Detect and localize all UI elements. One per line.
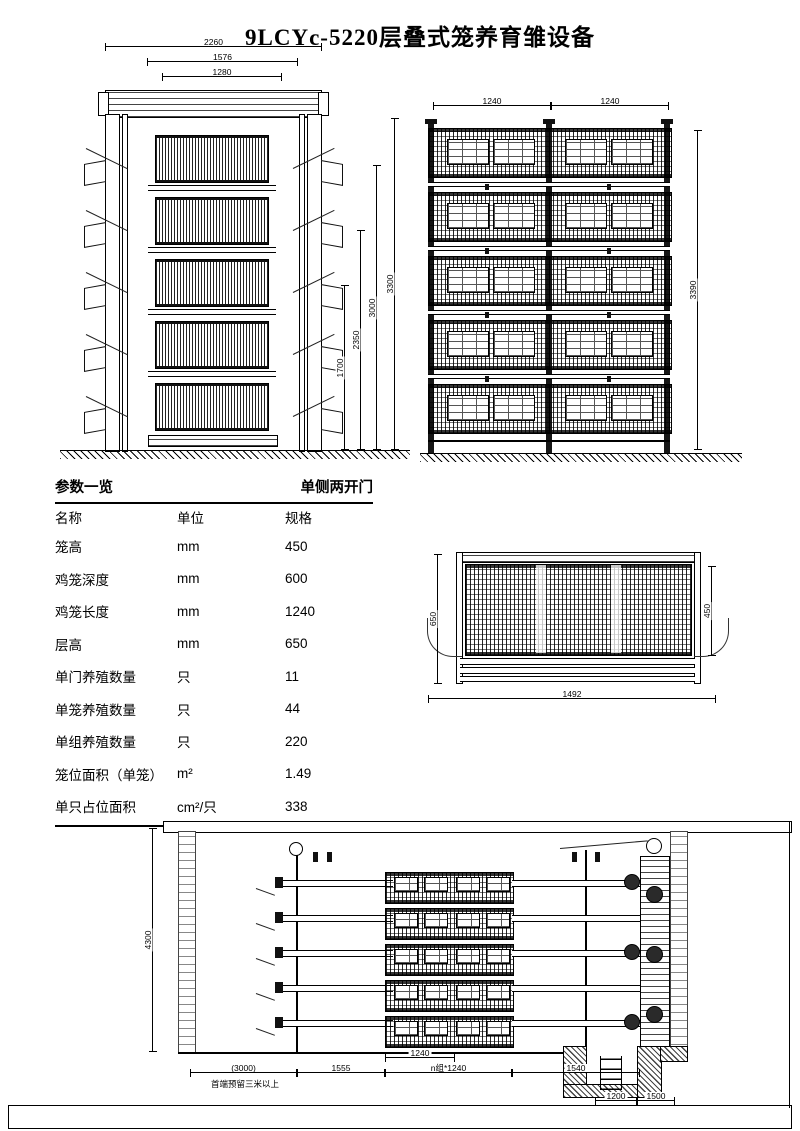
ground-hatch [60, 450, 410, 459]
frame-right-line [789, 821, 790, 1108]
table-variant: 单侧两开门 [301, 476, 374, 497]
front-tier-1 [428, 128, 672, 178]
pit-ladder [600, 1056, 622, 1090]
feeder-mark [485, 376, 489, 382]
elev-tier-2 [385, 908, 514, 940]
dim-elev-1240: 1240 [385, 1057, 455, 1058]
feed-trough-right [321, 222, 343, 248]
pit-ledge [660, 1046, 688, 1062]
section-mesh [465, 564, 692, 656]
hopper-mark [595, 852, 600, 862]
manure-belt [148, 371, 276, 377]
cage-door [565, 331, 607, 357]
mesh-divider [611, 565, 621, 653]
tier-rail-right [512, 880, 640, 887]
front-tier-5 [428, 384, 672, 434]
tier-rail-right [512, 950, 640, 957]
cage-door [611, 267, 653, 293]
dim-side-frame-width: 1576 [147, 61, 298, 62]
cage-door [486, 985, 510, 1000]
section-rail [460, 667, 695, 674]
cage-tier-1 [155, 135, 269, 183]
dim-elev-ncage: n组*1240 [385, 1072, 512, 1073]
cage-door [424, 1021, 448, 1036]
tier-rail-left [283, 1020, 393, 1027]
feed-trough-left [84, 284, 106, 310]
elev-tier-5 [385, 1016, 514, 1048]
motor-icon [624, 944, 640, 960]
cage-door [447, 203, 489, 229]
sprocket-icon [646, 946, 663, 963]
post-cap [661, 119, 673, 124]
tier-rail-right [512, 915, 640, 922]
dim-side-2350: 2350 [360, 230, 361, 450]
feed-trough-right [321, 160, 343, 186]
table-column-headers: 名称 单位 规格 [55, 504, 373, 530]
table-header: 参数一览 单侧两开门 [55, 476, 373, 504]
cage-door [493, 203, 535, 229]
top-beam [105, 90, 322, 118]
cage-door [565, 203, 607, 229]
cage-door [456, 877, 480, 892]
rail-knob [275, 947, 283, 958]
table-row: 鸡笼长度mm1240 [55, 595, 373, 628]
cage-door [611, 395, 653, 421]
motor-icon [624, 874, 640, 890]
step-bracket [256, 993, 275, 1001]
cage-door [456, 913, 480, 928]
cage-door [611, 331, 653, 357]
dim-front-bay-left: 1240 [433, 105, 551, 106]
sprocket-icon [646, 886, 663, 903]
section-top-rail [460, 552, 697, 563]
cage-door [447, 395, 489, 421]
dim-elev-4300: 4300 [152, 828, 153, 1052]
dim-front-height: 3390 [697, 130, 698, 450]
feeder-mark [607, 248, 611, 254]
bottom-trough [148, 435, 278, 447]
cage-door [493, 331, 535, 357]
side-post-left-inner [122, 114, 128, 452]
dim-elev-1540: 1540 [512, 1072, 640, 1073]
front-view-drawing: 1240 1240 [425, 95, 735, 465]
feed-trough-left [84, 408, 106, 434]
cage-door [456, 949, 480, 964]
cage-door [611, 139, 653, 165]
dim-side-1700: 1700 [344, 285, 345, 450]
dim-side-overall-width: 2260 [105, 46, 322, 47]
hopper-mark [572, 852, 577, 862]
table-row: 鸡笼深度mm600 [55, 563, 373, 596]
front-tier-3 [428, 256, 672, 306]
tier-rail [428, 310, 670, 315]
dim-front-bay-right: 1240 [551, 105, 669, 106]
dim-elev-reserve: (3000) [190, 1072, 297, 1073]
cable-line [560, 840, 648, 849]
feeder-mark [607, 376, 611, 382]
table-row: 单笼养殖数量只44 [55, 693, 373, 726]
cage-tier-4 [155, 321, 269, 369]
hopper-mark [327, 852, 332, 862]
side-view-drawing: 2260 1576 1280 [60, 42, 415, 467]
feed-trough-right [321, 408, 343, 434]
floor-line [178, 1052, 563, 1054]
base-rail [428, 440, 670, 442]
cage-door [565, 139, 607, 165]
tier-rail [428, 374, 670, 379]
cage-door [493, 267, 535, 293]
dim-section-450: 450 [711, 566, 712, 656]
cage-door [394, 1021, 418, 1036]
front-tier-4 [428, 320, 672, 370]
dim-pit-1500: 1500 [637, 1100, 675, 1101]
motor-icon [624, 1014, 640, 1030]
section-rail [460, 658, 695, 665]
parameter-table: 参数一览 单侧两开门 名称 单位 规格 笼高mm450 鸡笼深度mm600 鸡笼… [55, 476, 373, 827]
tier-rail-right [512, 1020, 640, 1027]
elev-tier-3 [385, 944, 514, 976]
table-row: 笼高mm450 [55, 530, 373, 563]
mesh-divider [536, 565, 546, 653]
reserve-note: 首端预留三米以上 [190, 1078, 300, 1090]
cage-door [493, 395, 535, 421]
step-bracket [256, 958, 275, 966]
section-rail [460, 676, 695, 682]
cage-door [611, 203, 653, 229]
cage-door [486, 1021, 510, 1036]
feeder-mark [485, 248, 489, 254]
dim-section-1492: 1492 [428, 698, 716, 699]
table-body: 名称 单位 规格 笼高mm450 鸡笼深度mm600 鸡笼长度mm1240 层高… [55, 504, 373, 827]
cage-door [424, 913, 448, 928]
feeder-mark [607, 184, 611, 190]
feeder-mark [485, 184, 489, 190]
manure-belt [148, 309, 276, 315]
dim-section-650: 650 [437, 554, 438, 684]
step-bracket [256, 1028, 275, 1036]
pulley-icon [289, 842, 303, 856]
elevation-drawing: 4300 1240 (3000) 1555 n组*1240 1540 首端预留三… [108, 816, 792, 1108]
post-cap [425, 119, 437, 124]
feeder-mark [485, 312, 489, 318]
cage-door [456, 985, 480, 1000]
feed-trough-left [84, 222, 106, 248]
step-bracket [256, 923, 275, 931]
cage-tier-2 [155, 197, 269, 245]
cage-door [565, 395, 607, 421]
post-cap [543, 119, 555, 124]
cage-door [447, 331, 489, 357]
wall-column-right [670, 831, 688, 1054]
dim-side-inner-width: 1280 [162, 76, 282, 77]
cage-door [486, 949, 510, 964]
tier-rail-left [283, 915, 393, 922]
tier-rail-left [283, 950, 393, 957]
ground-hatch [420, 453, 742, 462]
cage-door [424, 877, 448, 892]
drive-pulley-icon [646, 838, 662, 854]
tier-rail [428, 182, 670, 187]
cage-door [486, 913, 510, 928]
cage-door [493, 139, 535, 165]
cage-door [447, 139, 489, 165]
table-row: 单门养殖数量只11 [55, 660, 373, 693]
section-view-drawing: 650 450 1492 [415, 540, 745, 712]
rail-knob [275, 877, 283, 888]
cage-door [394, 985, 418, 1000]
beam-end-left [98, 92, 109, 116]
cage-door [565, 267, 607, 293]
table-row: 层高mm650 [55, 628, 373, 661]
feeder-mark [607, 312, 611, 318]
beam-end-right [318, 92, 329, 116]
dim-side-3300: 3300 [394, 118, 395, 450]
table-row: 笼位面积（单笼）m²1.49 [55, 758, 373, 791]
step-bracket [256, 888, 275, 896]
dim-pit-1200: 1200 [595, 1100, 637, 1101]
drawing-sheet: 9LCYc-5220层叠式笼养育雏设备 2260 1576 1280 [0, 0, 800, 1131]
rail-knob [275, 1017, 283, 1028]
rail-knob [275, 912, 283, 923]
tier-rail [428, 246, 670, 251]
hopper-mark [313, 852, 318, 862]
feed-trough-right [321, 284, 343, 310]
tier-rail-right [512, 985, 640, 992]
table-title: 参数一览 [55, 476, 113, 497]
table-row: 单组养殖数量只220 [55, 725, 373, 758]
manure-belt [148, 247, 276, 253]
rail-knob [275, 982, 283, 993]
elev-tier-1 [385, 872, 514, 904]
sprocket-icon [646, 1006, 663, 1023]
dim-elev-1555: 1555 [297, 1072, 385, 1073]
feed-trough-left [84, 160, 106, 186]
cage-door [394, 949, 418, 964]
cage-tier-3 [155, 259, 269, 307]
elev-tier-4 [385, 980, 514, 1012]
tier-rail-left [283, 880, 393, 887]
cage-door [424, 985, 448, 1000]
wall-column-left [178, 831, 196, 1054]
feed-trough-left [84, 346, 106, 372]
cage-door [486, 877, 510, 892]
front-tier-2 [428, 192, 672, 242]
cage-tier-5 [155, 383, 269, 431]
ceiling-beam [163, 821, 792, 833]
cage-door [456, 1021, 480, 1036]
manure-belt [148, 185, 276, 191]
dim-side-3000: 3000 [376, 165, 377, 450]
cage-door [447, 267, 489, 293]
tier-rail-left [283, 985, 393, 992]
cage-door [424, 949, 448, 964]
cage-door [394, 913, 418, 928]
cage-door [394, 877, 418, 892]
sheet-border-band [8, 1105, 792, 1129]
